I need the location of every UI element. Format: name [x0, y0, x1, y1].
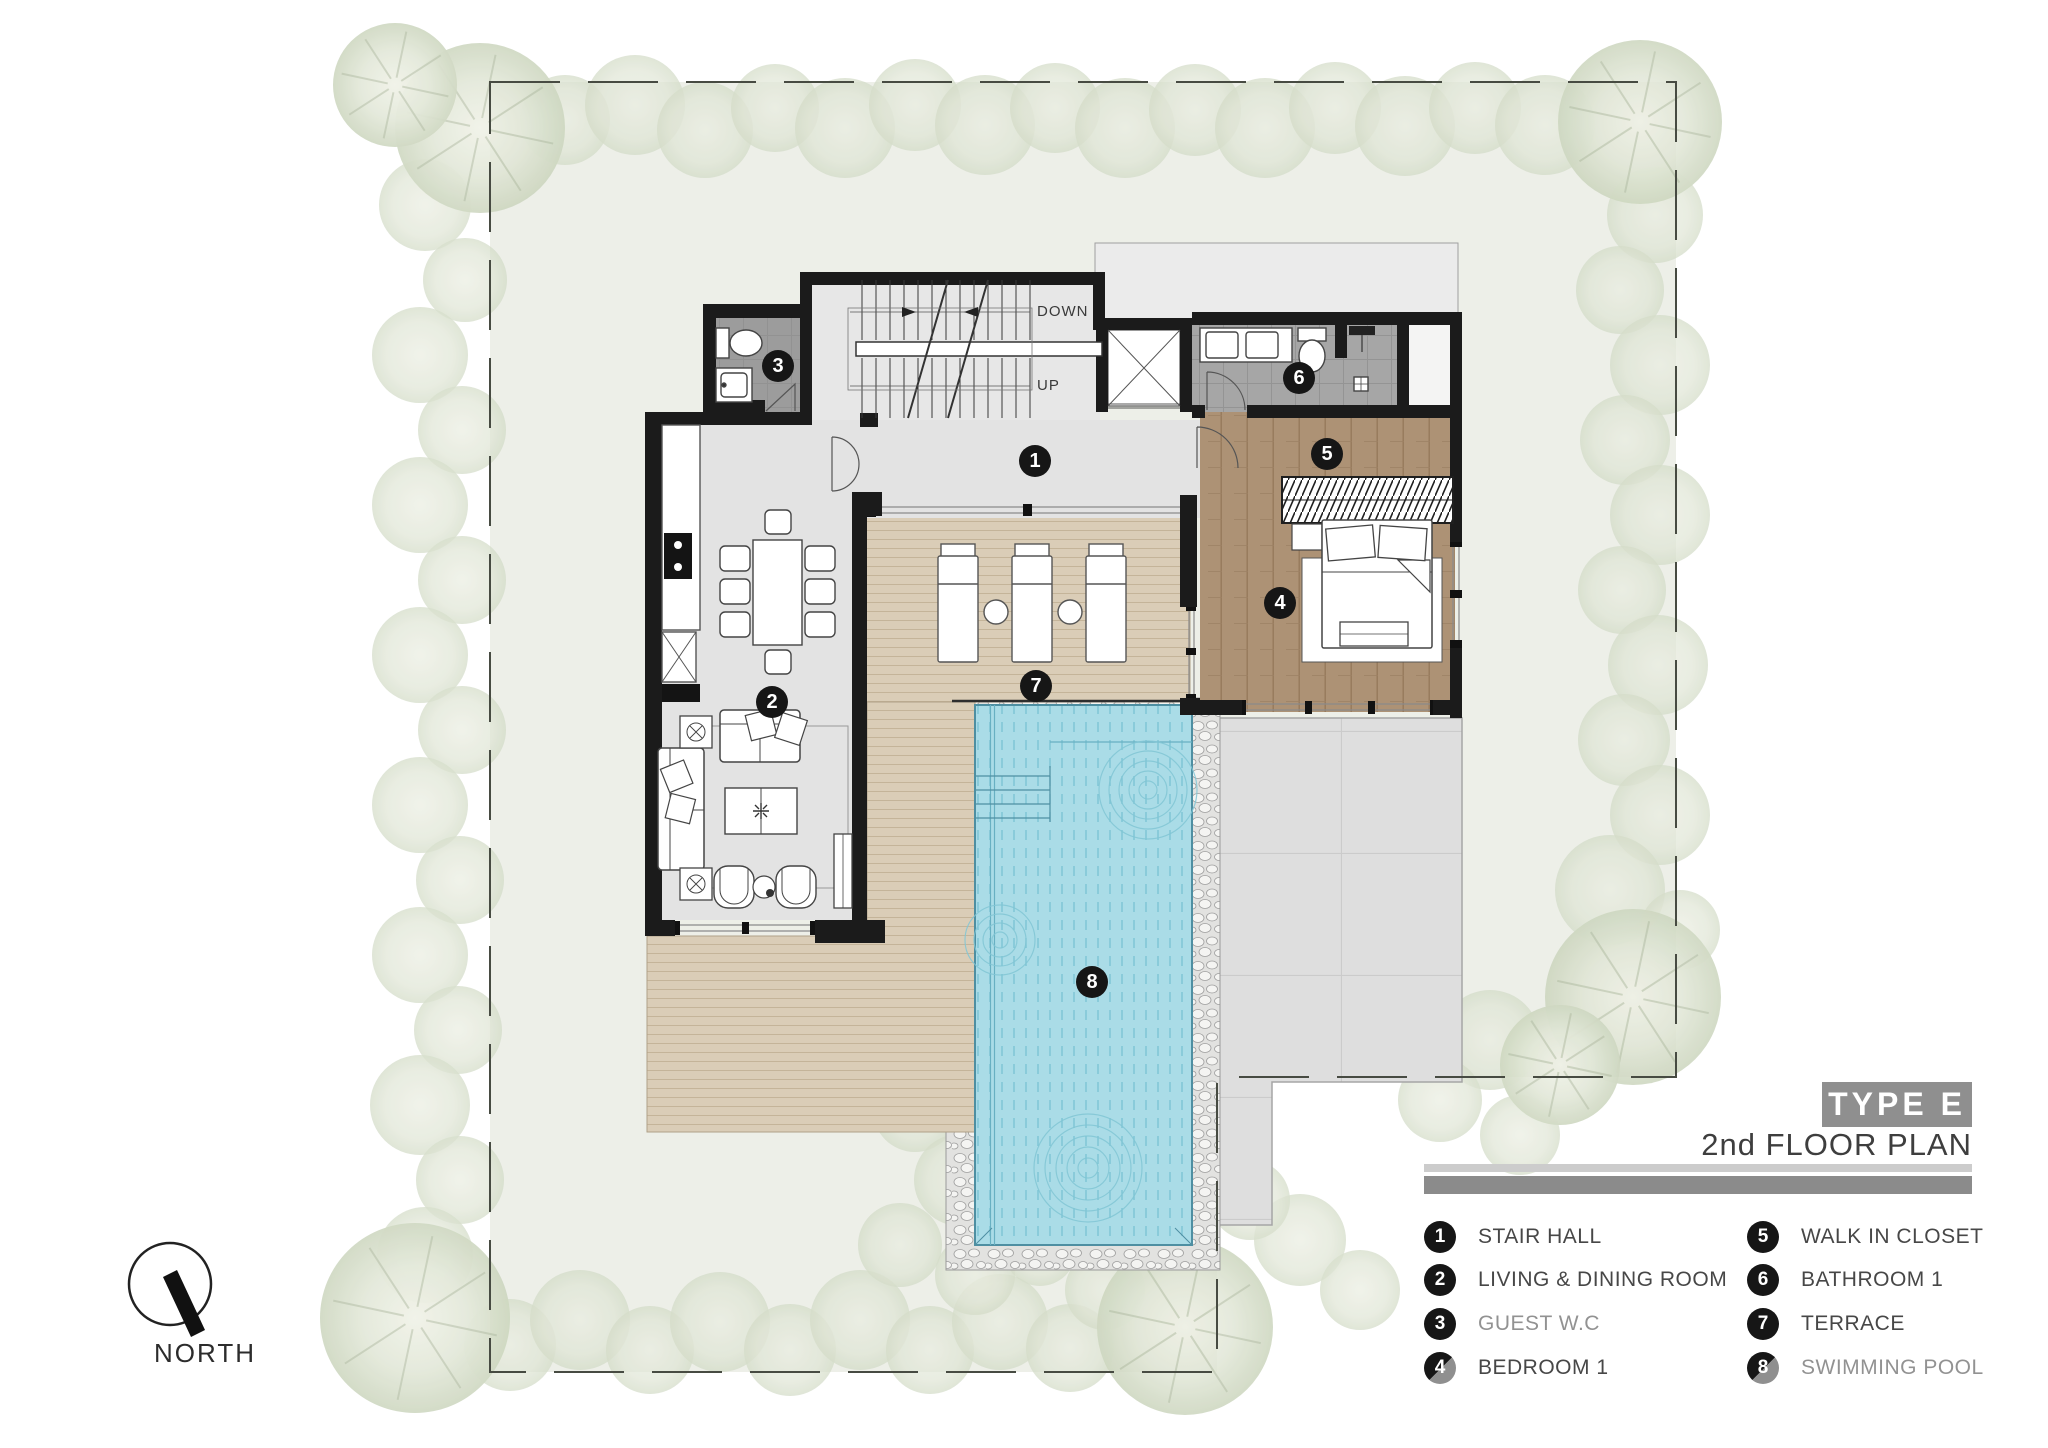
legend-item-walk-in-closet: 5 WALK IN CLOSET: [1747, 1221, 1983, 1253]
legend-item-stair-hall: 1 STAIR HALL: [1424, 1221, 1602, 1253]
paved-terrace-slab: [1215, 718, 1462, 1225]
legend-label: WALK IN CLOSET: [1801, 1225, 1983, 1249]
title-divider-dark: [1424, 1176, 1972, 1194]
legend-label: GUEST W.C: [1478, 1312, 1600, 1336]
legend-item-guest-wc: 3 GUEST W.C: [1424, 1308, 1600, 1340]
roof-eave: [1095, 243, 1458, 323]
legend-item-bathroom-1: 6 BATHROOM 1: [1747, 1264, 1943, 1296]
north-arrow-icon: [120, 1232, 240, 1352]
legend-item-swimming-pool: 8 SWIMMING POOL: [1747, 1352, 1984, 1384]
kitchen: [662, 425, 700, 702]
legend-label: SWIMMING POOL: [1801, 1356, 1984, 1380]
legend-item-terrace: 7 TERRACE: [1747, 1308, 1905, 1340]
legend-item-bedroom-1: 4 BEDROOM 1: [1424, 1352, 1609, 1384]
room-marker-bathroom-1: 6: [1283, 362, 1315, 394]
terrace-loungers: [938, 544, 1126, 662]
floor-plan-drawing: [0, 0, 2048, 1448]
legend-badge: 7: [1747, 1308, 1779, 1340]
bedroom-furniture: [1282, 477, 1453, 662]
legend-label: LIVING & DINING ROOM: [1478, 1268, 1727, 1292]
room-marker-walk-in-closet: 5: [1311, 438, 1343, 470]
plan-type-title: TYPE E: [1822, 1082, 1972, 1127]
legend-badge: 4: [1424, 1352, 1456, 1384]
legend-badge: 5: [1747, 1221, 1779, 1253]
room-marker-living-dining: 2: [756, 686, 788, 718]
legend-badge: 2: [1424, 1264, 1456, 1296]
legend-badge: 1: [1424, 1221, 1456, 1253]
room-marker-swimming-pool: 8: [1076, 966, 1108, 998]
legend-label: TERRACE: [1801, 1312, 1905, 1336]
legend-label: STAIR HALL: [1478, 1225, 1602, 1249]
stair-down-label: DOWN: [1037, 303, 1089, 320]
legend-item-living-dining: 2 LIVING & DINING ROOM: [1424, 1264, 1727, 1296]
compass-north-label: NORTH: [145, 1338, 265, 1369]
room-marker-terrace: 7: [1020, 670, 1052, 702]
room-marker-bedroom-1: 4: [1264, 587, 1296, 619]
room-marker-guest-wc: 3: [762, 350, 794, 382]
legend-label: BATHROOM 1: [1801, 1268, 1943, 1292]
legend-label: BEDROOM 1: [1478, 1356, 1609, 1380]
legend-badge: 3: [1424, 1308, 1456, 1340]
stair-up-label: UP: [1037, 377, 1060, 394]
title-divider-light: [1424, 1164, 1972, 1172]
legend-badge: 6: [1747, 1264, 1779, 1296]
floorplan-page: DOWN UP 1 2 3 4 5 6 7 8 NORTH TYPE E 2nd…: [0, 0, 2048, 1448]
legend-badge: 8: [1747, 1352, 1779, 1384]
room-marker-stair-hall: 1: [1019, 445, 1051, 477]
floor-plan-subtitle: 2nd FLOOR PLAN: [1472, 1127, 1972, 1163]
